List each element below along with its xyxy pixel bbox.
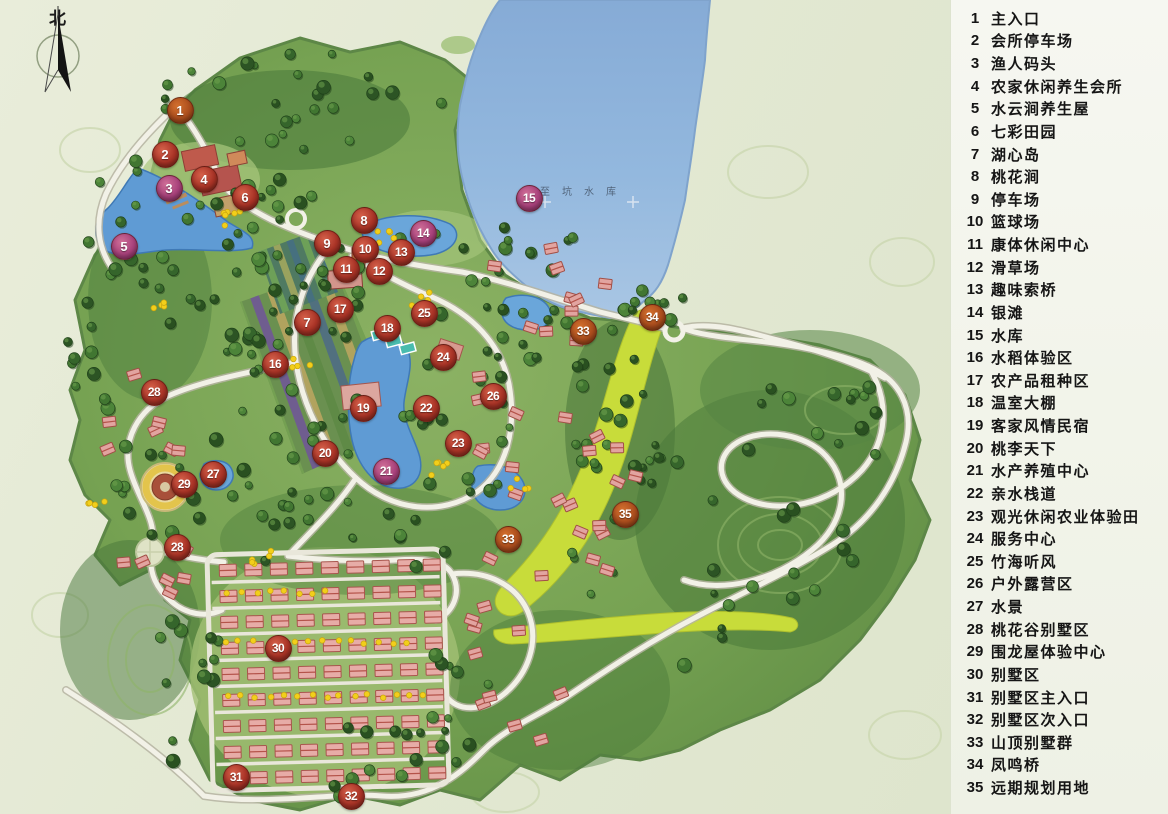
villa-house <box>249 719 266 731</box>
legend-item-label: 主入口 <box>991 8 1041 29</box>
legend-item-label: 滑草场 <box>991 257 1041 278</box>
legend-item-number: 31 <box>959 689 991 706</box>
legend-item: 6七彩田园 <box>951 120 1168 143</box>
villa-house <box>297 614 314 626</box>
map-marker: 9 <box>314 230 341 257</box>
legend-item: 16水稻体验区 <box>951 346 1168 369</box>
site-plan-canvas <box>0 0 950 814</box>
legend-item-label: 会所停车场 <box>991 30 1074 51</box>
map-marker: 15 <box>516 185 543 212</box>
map-marker: 12 <box>366 258 393 285</box>
small-grove <box>441 36 475 54</box>
legend-item-number: 23 <box>959 508 991 525</box>
hillside-house <box>565 306 578 316</box>
villa-house <box>298 666 315 678</box>
legend-item: 8桃花涧 <box>951 165 1168 188</box>
map-marker: 33 <box>570 318 597 345</box>
legend-item: 14银滩 <box>951 301 1168 324</box>
screenshot-root: 北 至坑水库 123456789101112131415161718192021… <box>0 0 1168 814</box>
legend-item-label: 温室大棚 <box>991 392 1057 413</box>
map-marker: 31 <box>223 764 250 791</box>
legend-item-number: 10 <box>959 213 991 230</box>
legend-item-label: 竹海听风 <box>991 551 1057 572</box>
legend-item-number: 9 <box>959 191 991 208</box>
villa-house <box>402 715 419 727</box>
legend-item-label: 亲水栈道 <box>991 483 1057 504</box>
villa-house <box>275 745 292 757</box>
legend-item-label: 山顶别墅群 <box>991 732 1074 753</box>
legend-item-label: 湖心岛 <box>991 144 1041 165</box>
map-marker: 22 <box>413 395 440 422</box>
legend-item-number: 33 <box>959 734 991 751</box>
legend-item-number: 35 <box>959 779 991 796</box>
legend-item: 10篮球场 <box>951 211 1168 234</box>
legend-item-label: 桃花涧 <box>991 166 1041 187</box>
villa-house <box>372 560 389 572</box>
legend-item-label: 水稻体验区 <box>991 347 1074 368</box>
legend-item-label: 户外露营区 <box>991 573 1074 594</box>
villa-house <box>272 615 289 627</box>
legend-item: 4农家休闲养生会所 <box>951 75 1168 98</box>
legend-item: 20桃李天下 <box>951 437 1168 460</box>
legend-item-label: 停车场 <box>991 189 1041 210</box>
villa-house <box>273 667 290 679</box>
site-plan-map: 北 至坑水库 123456789101112131415161718192021… <box>0 0 950 814</box>
map-marker: 17 <box>327 296 354 323</box>
legend-item: 26户外露营区 <box>951 573 1168 596</box>
legend-item-label: 水景 <box>991 596 1024 617</box>
map-marker: 24 <box>430 344 457 371</box>
legend-item: 35远期规划用地 <box>951 776 1168 799</box>
map-marker: 23 <box>445 430 472 457</box>
villa-house <box>424 585 441 597</box>
legend-item-label: 渔人码头 <box>991 53 1057 74</box>
hillside-house <box>177 572 192 584</box>
legend-item-number: 7 <box>959 146 991 163</box>
villa-house <box>300 744 317 756</box>
villa-house <box>377 742 394 754</box>
legend-item-label: 水云涧养生屋 <box>991 98 1090 119</box>
villa-house <box>373 586 390 598</box>
map-marker: 27 <box>200 461 227 488</box>
hillside-house <box>512 625 526 636</box>
legend-item: 27水景 <box>951 595 1168 618</box>
villa-house <box>296 562 313 574</box>
legend-item: 9停车场 <box>951 188 1168 211</box>
legend-item-number: 26 <box>959 575 991 592</box>
hillside-house <box>598 278 612 290</box>
villa-house <box>351 743 368 755</box>
legend-item-number: 8 <box>959 168 991 185</box>
compass: 北 <box>22 4 94 122</box>
map-marker: 6 <box>232 184 259 211</box>
legend-item-label: 桃花谷别墅区 <box>991 619 1090 640</box>
villa-house <box>375 664 392 676</box>
legend-item-number: 25 <box>959 553 991 570</box>
map-marker: 28 <box>141 379 168 406</box>
legend-item: 23观光休闲农业体验田 <box>951 505 1168 528</box>
villa-house <box>376 716 393 728</box>
villa-house <box>300 718 317 730</box>
legend-item-number: 5 <box>959 100 991 117</box>
map-marker: 13 <box>388 239 415 266</box>
villa-house <box>321 561 338 573</box>
villa-house <box>222 668 239 680</box>
villa-house <box>398 585 415 597</box>
legend-item-label: 凤鸣桥 <box>991 754 1041 775</box>
villa-house <box>424 611 441 623</box>
villa-house <box>347 587 364 599</box>
map-marker: 25 <box>411 300 438 327</box>
legend-item: 22亲水栈道 <box>951 482 1168 505</box>
villa-house <box>270 563 287 575</box>
legend-item-label: 观光休闲农业体验田 <box>991 506 1140 527</box>
legend-item-number: 11 <box>959 236 991 253</box>
legend-item: 15水库 <box>951 324 1168 347</box>
legend-item: 19客家风情民宿 <box>951 414 1168 437</box>
legend-item-number: 17 <box>959 372 991 389</box>
map-marker: 8 <box>351 207 378 234</box>
villa-house <box>249 745 266 757</box>
legend-item-number: 15 <box>959 327 991 344</box>
villa-house <box>325 717 342 729</box>
hillside-house <box>487 260 501 272</box>
hillside-house <box>535 570 549 581</box>
map-marker: 16 <box>262 351 289 378</box>
map-marker: 30 <box>265 635 292 662</box>
legend-item-number: 22 <box>959 485 991 502</box>
map-marker: 11 <box>333 256 360 283</box>
legend-item-number: 1 <box>959 10 991 27</box>
map-marker: 28 <box>164 534 191 561</box>
hillside-house <box>558 412 572 424</box>
map-marker: 5 <box>111 233 138 260</box>
legend-item-label: 围龙屋体验中心 <box>991 641 1107 662</box>
legend-item-label: 篮球场 <box>991 211 1041 232</box>
legend-item-label: 农产品租种区 <box>991 370 1090 391</box>
legend-item-number: 32 <box>959 711 991 728</box>
hillside-house <box>544 242 559 254</box>
legend-item-number: 21 <box>959 462 991 479</box>
villa-house <box>324 665 341 677</box>
legend-item-number: 13 <box>959 281 991 298</box>
legend: 1主入口2会所停车场3渔人码头4农家休闲养生会所5水云涧养生屋6七彩田园7湖心岛… <box>950 0 1168 814</box>
legend-item-number: 20 <box>959 440 991 457</box>
legend-item: 2会所停车场 <box>951 30 1168 53</box>
legend-item-label: 远期规划用地 <box>991 777 1090 798</box>
villa-house <box>425 637 442 649</box>
legend-item-number: 18 <box>959 394 991 411</box>
legend-item-label: 银滩 <box>991 302 1024 323</box>
legend-item-label: 别墅区 <box>991 664 1041 685</box>
villa-house <box>247 641 264 653</box>
legend-item-number: 12 <box>959 259 991 276</box>
hillside-house <box>472 371 486 383</box>
legend-item-label: 桃李天下 <box>991 438 1057 459</box>
villa-house <box>246 615 263 627</box>
map-marker: 35 <box>612 501 639 528</box>
map-marker: 14 <box>410 220 437 247</box>
villa-house <box>400 663 417 675</box>
map-marker: 34 <box>639 304 666 331</box>
villa-house <box>219 564 236 576</box>
legend-item-number: 16 <box>959 349 991 366</box>
legend-item-number: 4 <box>959 78 991 95</box>
legend-item: 33山顶别墅群 <box>951 731 1168 754</box>
legend-item: 1主入口 <box>951 7 1168 30</box>
legend-rows: 1主入口2会所停车场3渔人码头4农家休闲养生会所5水云涧养生屋6七彩田园7湖心岛… <box>951 0 1168 799</box>
legend-item: 18温室大棚 <box>951 392 1168 415</box>
legend-item-number: 3 <box>959 55 991 72</box>
legend-item-number: 30 <box>959 666 991 683</box>
reservoir-label: 至坑水库 <box>540 183 628 198</box>
legend-item-label: 水产养殖中心 <box>991 460 1090 481</box>
legend-item: 11康体休闲中心 <box>951 233 1168 256</box>
legend-item-label: 康体休闲中心 <box>991 234 1090 255</box>
legend-item: 31别墅区主入口 <box>951 686 1168 709</box>
legend-item: 30别墅区 <box>951 663 1168 686</box>
legend-item-number: 29 <box>959 643 991 660</box>
villa-house <box>374 612 391 624</box>
villa-house <box>348 613 365 625</box>
legend-item: 21水产养殖中心 <box>951 460 1168 483</box>
legend-item-label: 农家休闲养生会所 <box>991 76 1123 97</box>
legend-item-number: 34 <box>959 756 991 773</box>
villa-house <box>221 616 238 628</box>
villa-house <box>301 770 318 782</box>
legend-item-number: 6 <box>959 123 991 140</box>
villa-house <box>326 743 343 755</box>
hillside-house <box>593 520 606 530</box>
villa-house <box>224 746 241 758</box>
map-marker: 32 <box>338 783 365 810</box>
map-marker: 21 <box>373 458 400 485</box>
villa-house <box>429 767 446 779</box>
legend-item-number: 2 <box>959 32 991 49</box>
map-marker: 2 <box>152 141 179 168</box>
legend-item-number: 24 <box>959 530 991 547</box>
legend-item-label: 七彩田园 <box>991 121 1057 142</box>
villa-house <box>347 561 364 573</box>
legend-item: 25竹海听风 <box>951 550 1168 573</box>
legend-item-label: 别墅区次入口 <box>991 709 1090 730</box>
legend-item-label: 别墅区主入口 <box>991 687 1090 708</box>
legend-item: 12滑草场 <box>951 256 1168 279</box>
villa-house <box>323 613 340 625</box>
map-marker: 26 <box>480 383 507 410</box>
map-marker: 18 <box>374 315 401 342</box>
map-marker: 4 <box>191 166 218 193</box>
map-marker: 1 <box>167 97 194 124</box>
villa-house <box>274 719 291 731</box>
map-marker: 3 <box>156 175 183 202</box>
legend-item: 29围龙屋体验中心 <box>951 641 1168 664</box>
villa-house <box>402 741 419 753</box>
hillside-house <box>172 445 186 456</box>
map-marker: 7 <box>294 309 321 336</box>
north-arrow-icon <box>22 4 94 100</box>
legend-item-number: 19 <box>959 417 991 434</box>
legend-item-label: 服务中心 <box>991 528 1057 549</box>
villa-house <box>247 667 264 679</box>
villa-house <box>250 771 267 783</box>
hillside-house <box>611 443 624 453</box>
legend-item-label: 客家风情民宿 <box>991 415 1090 436</box>
villa-house <box>223 720 240 732</box>
legend-item-number: 14 <box>959 304 991 321</box>
map-marker: 19 <box>350 395 377 422</box>
villa-house <box>427 689 444 701</box>
hillside-house <box>505 461 519 472</box>
legend-item: 3渔人码头 <box>951 52 1168 75</box>
legend-item: 13趣味索桥 <box>951 279 1168 302</box>
villa-house <box>423 559 440 571</box>
hillside-house <box>539 326 553 337</box>
legend-item-number: 28 <box>959 621 991 638</box>
villa-house <box>399 611 416 623</box>
map-marker: 20 <box>312 440 339 467</box>
villa-houses <box>219 559 446 785</box>
legend-item: 5水云涧养生屋 <box>951 98 1168 121</box>
map-marker: 33 <box>495 526 522 553</box>
legend-item: 7湖心岛 <box>951 143 1168 166</box>
hillside-house <box>582 445 596 456</box>
hillside-house <box>117 557 131 568</box>
legend-item: 34凤鸣桥 <box>951 754 1168 777</box>
legend-item: 24服务中心 <box>951 527 1168 550</box>
legend-item-number: 27 <box>959 598 991 615</box>
hillside-house <box>102 416 116 428</box>
legend-item-label: 水库 <box>991 325 1024 346</box>
villa-house <box>349 665 366 677</box>
legend-item-label: 趣味索桥 <box>991 279 1057 300</box>
legend-item: 17农产品租种区 <box>951 369 1168 392</box>
villa-house <box>276 771 293 783</box>
legend-item: 28桃花谷别墅区 <box>951 618 1168 641</box>
legend-item: 32别墅区次入口 <box>951 708 1168 731</box>
map-marker: 29 <box>171 471 198 498</box>
villa-house <box>378 768 395 780</box>
